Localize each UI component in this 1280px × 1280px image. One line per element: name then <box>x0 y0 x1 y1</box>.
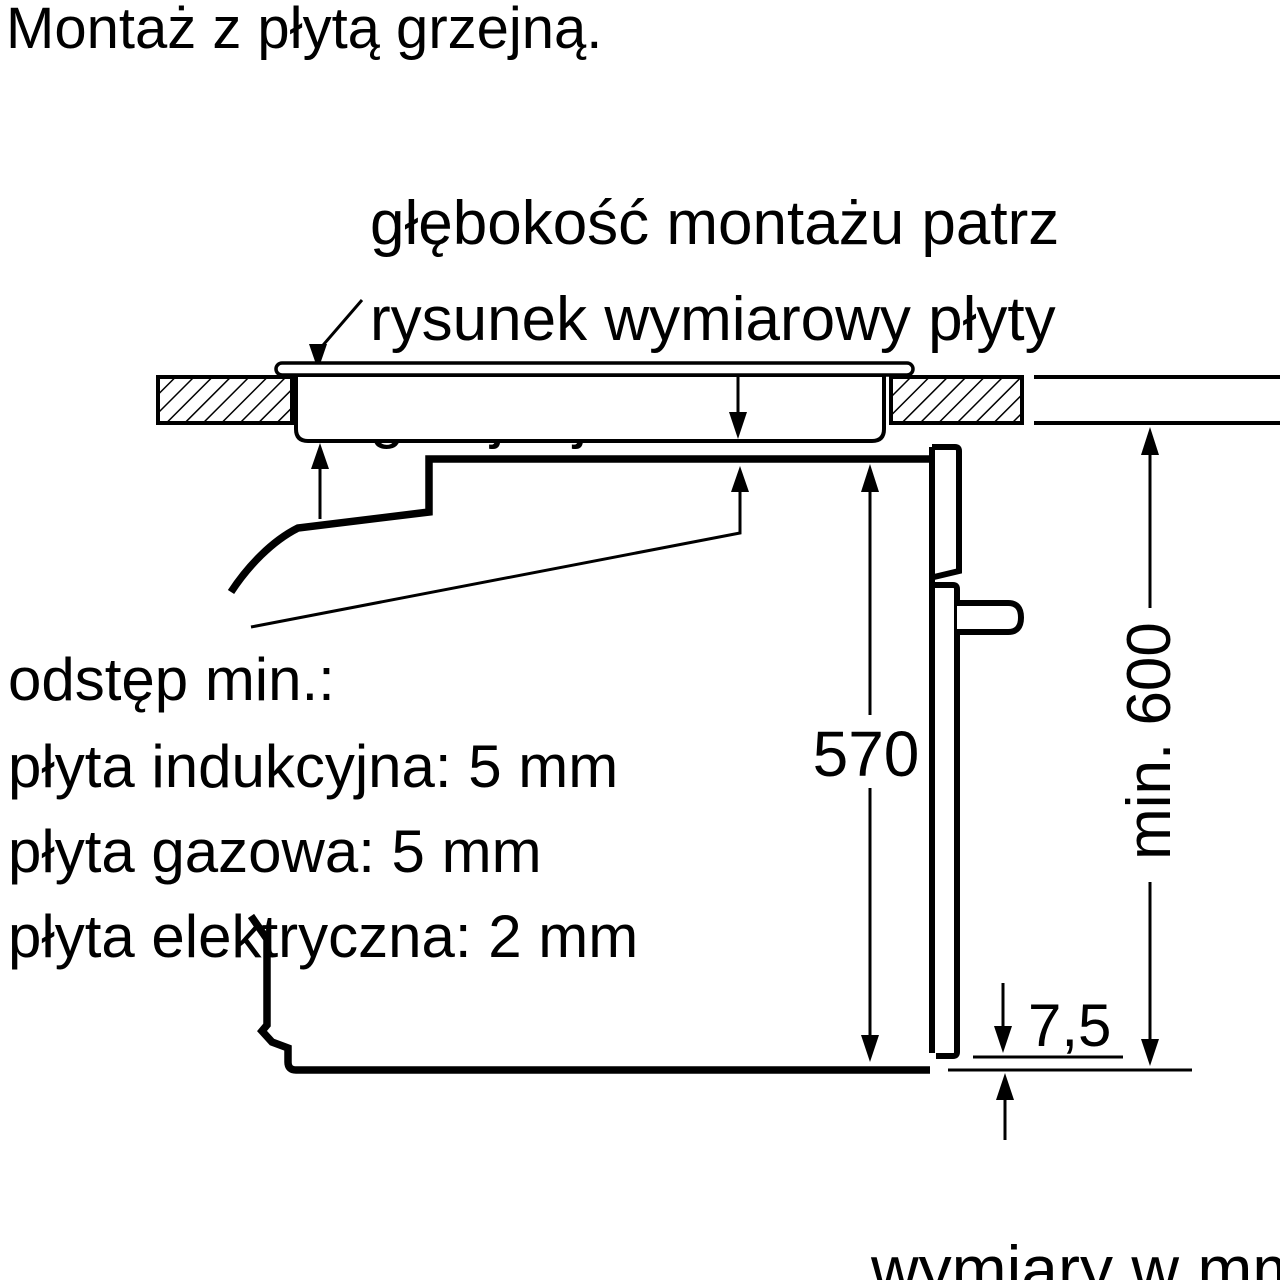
hob-top-plate <box>276 363 913 375</box>
dimension-570: 570 <box>813 464 920 1062</box>
worktop-left-section <box>158 377 292 423</box>
units-note: wymiary w mm <box>870 1232 1280 1280</box>
clearance-leader-arrow <box>251 466 749 627</box>
hob-body <box>296 375 884 441</box>
installation-diagram: Montaż z płytą grzejną. głębokość montaż… <box>0 0 1280 1280</box>
dimension-min-600-label: min. 600 <box>1115 622 1184 860</box>
dimension-570-label: 570 <box>813 718 920 790</box>
mounting-depth-leader-arrow <box>309 300 362 370</box>
clearance-arrow-left <box>311 443 329 519</box>
clearance-note-line1: odstęp min.: <box>8 646 335 713</box>
mounting-depth-note-line2: rysunek wymiarowy płyty <box>370 285 1056 354</box>
oven-door-handle <box>957 603 1021 632</box>
clearance-note: odstęp min.: płyta indukcyjna: 5 mm płyt… <box>8 646 638 970</box>
page-title: Montaż z płytą grzejną. <box>6 0 602 61</box>
manual-page: Montaż z płytą grzejną. głębokość montaż… <box>0 0 1280 1280</box>
dimension-7-5-label: 7,5 <box>1028 992 1111 1059</box>
mounting-depth-note-line1: głębokość montażu patrz <box>370 189 1059 258</box>
dimension-7-5: 7,5 <box>948 983 1192 1140</box>
clearance-note-line4: płyta elektryczna: 2 mm <box>8 903 638 970</box>
clearance-note-line3: płyta gazowa: 5 mm <box>8 818 542 885</box>
dimension-min-600: min. 600 <box>1115 427 1184 1066</box>
worktop-right-section <box>891 377 1022 423</box>
clearance-note-line2: płyta indukcyjna: 5 mm <box>8 733 618 800</box>
oven-front <box>932 447 1021 1056</box>
oven-control-fascia <box>932 447 959 577</box>
hob <box>276 363 913 441</box>
cabinet-front-upper <box>231 459 933 592</box>
oven-door <box>935 585 957 1056</box>
